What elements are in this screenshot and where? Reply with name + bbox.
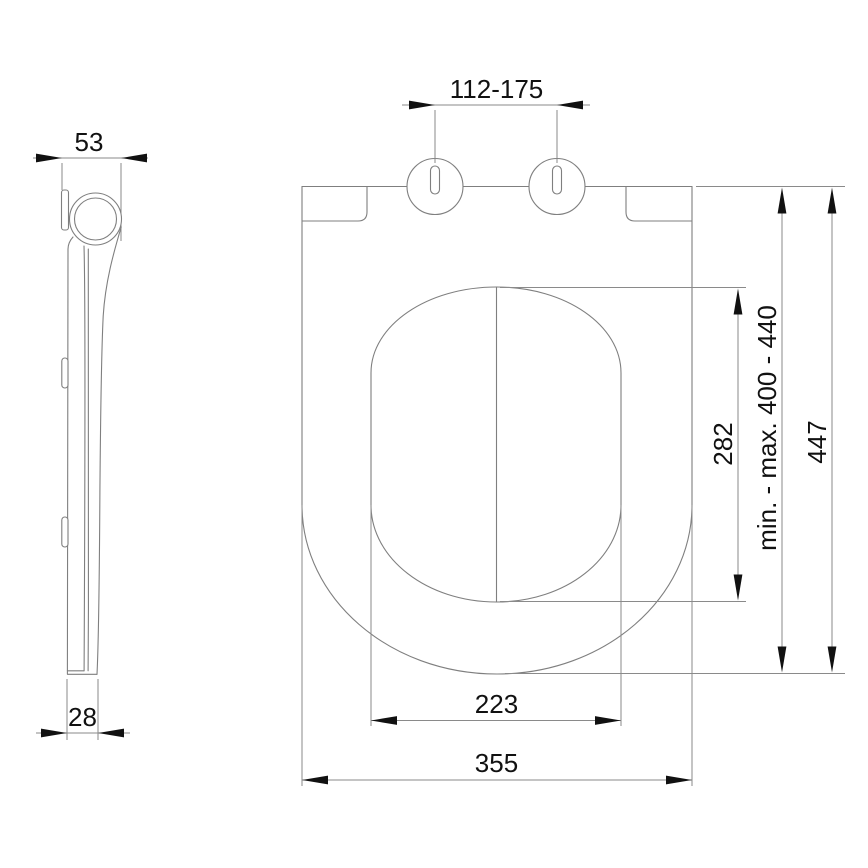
dim-overall-length: 447 — [505, 187, 845, 674]
arrow-up-icon — [828, 188, 837, 214]
dim-opening-length-label: 282 — [708, 422, 738, 465]
arrow-left-icon — [302, 776, 328, 785]
arrow-right-icon — [557, 101, 583, 110]
dim-opening-width-label: 223 — [475, 689, 518, 719]
arrow-down-icon — [778, 647, 787, 673]
arrow-left-icon — [371, 716, 397, 725]
dim-top-depth-label: 53 — [75, 127, 104, 157]
arrow-right-icon — [595, 716, 621, 725]
dim-hinge-spacing-label: 112-175 — [450, 74, 544, 104]
side-view: 53 28 — [33, 127, 148, 740]
top-view: 112-175 282 min. - max. 400 - 440 447 — [302, 74, 845, 786]
dim-opening-length: 282 — [500, 288, 746, 602]
arrow-left-icon — [409, 101, 435, 110]
arrow-down-icon — [734, 575, 743, 601]
corner-notch-left — [302, 187, 367, 222]
bumper-top — [62, 358, 68, 388]
arrow-up-icon — [734, 289, 743, 315]
dim-overall-length-label: 447 — [802, 420, 832, 463]
arrow-down-icon — [828, 647, 837, 673]
dim-overall-length-lines — [505, 187, 845, 674]
arrow-right-icon — [98, 729, 124, 738]
dim-bottom-depth-label: 28 — [68, 702, 97, 732]
arrow-up-icon — [778, 188, 787, 214]
dim-mounting-range: min. - max. 400 - 440 — [752, 188, 786, 673]
dim-mounting-range-label: min. - max. 400 - 440 — [752, 305, 782, 551]
arrow-right-icon — [121, 154, 147, 163]
toilet-seat-dimension-drawing: 53 28 — [0, 0, 868, 868]
profile-left-edge — [67, 237, 73, 671]
hinge-slot-right — [553, 166, 562, 194]
profile-seam-1 — [84, 246, 85, 671]
dim-bottom-depth: 28 — [36, 679, 130, 740]
dim-hinge-spacing: 112-175 — [402, 74, 590, 163]
arrow-left-icon — [41, 729, 67, 738]
arrow-left-icon — [36, 154, 62, 163]
dim-hinge-spacing-lines — [402, 105, 590, 163]
corner-notch-right — [626, 187, 692, 222]
technical-drawing-page: 53 28 — [0, 0, 868, 868]
seat-body — [302, 159, 692, 675]
profile-bottom — [67, 671, 97, 675]
dim-overall-width-label: 355 — [475, 748, 518, 778]
hinge-slot-left — [431, 166, 440, 194]
side-profile — [62, 190, 122, 674]
profile-right-edge — [97, 227, 121, 674]
hinge-cap-outer — [70, 193, 122, 245]
profile-seam-2 — [88, 249, 89, 671]
arrow-right-icon — [666, 776, 692, 785]
bumper-bottom — [62, 517, 68, 547]
hinge-bracket — [62, 190, 69, 230]
